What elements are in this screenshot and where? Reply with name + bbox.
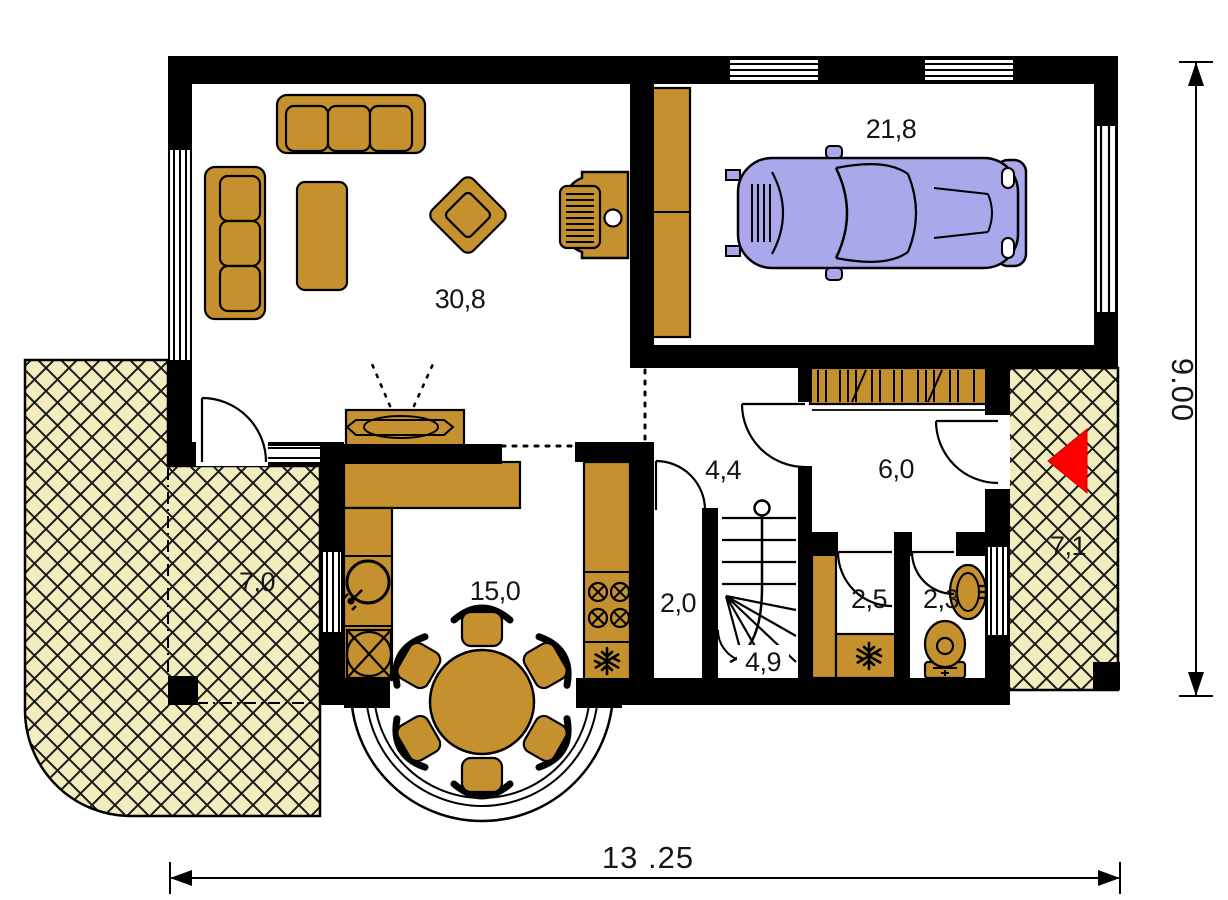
- height-dimension-label: 9.00: [1165, 358, 1200, 422]
- width-dimension-label: 13 .25: [602, 840, 694, 875]
- sofa-small-icon: [205, 167, 265, 319]
- wc-window: [988, 547, 1007, 635]
- floor-plan-canvas: 30,8 21,8 15,0 4,4 6,0 2,0 4,9 2,5 2,3 7…: [0, 0, 1228, 900]
- garage-area-label: 21,8: [866, 114, 917, 144]
- garage-window-2: [925, 60, 1013, 80]
- living-room-area-label: 30,8: [435, 284, 486, 314]
- wc-toilet-icon: [925, 621, 965, 678]
- dimension-height: 9.00: [1165, 62, 1213, 696]
- hall-area-label: 4,4: [705, 455, 742, 485]
- living-sidelight-window: [266, 446, 320, 462]
- terrace-right: [1008, 368, 1118, 690]
- terrace-right-area-label: 7,1: [1050, 531, 1086, 561]
- garage-window-1: [730, 60, 818, 80]
- garage-door: [1097, 126, 1115, 312]
- kitchen-area-label: 15,0: [470, 576, 521, 606]
- floor-plan-drawing: 30,8 21,8 15,0 4,4 6,0 2,0 4,9 2,5 2,3 7…: [0, 0, 1228, 900]
- wc-area-label: 2,3: [923, 584, 959, 614]
- kitchen-window: [323, 552, 341, 632]
- sofa-large-icon: [277, 95, 425, 153]
- wardrobe-icon: [810, 368, 988, 410]
- garage-cabinet-icon: [652, 88, 690, 337]
- coffee-table-icon: [297, 182, 347, 290]
- vestibule-area-label: 6,0: [878, 454, 914, 484]
- living-window-left: [170, 150, 190, 360]
- terrace-left-area-label: 7,0: [239, 567, 275, 597]
- pantry-area-label: 2,0: [660, 588, 696, 618]
- fireplace-icon: [560, 172, 628, 258]
- dimension-width: 13 .25: [170, 840, 1120, 894]
- storage-area-label: 2,5: [851, 584, 887, 614]
- car-icon: [726, 146, 1026, 280]
- staircase-area-label: 4,9: [745, 647, 781, 677]
